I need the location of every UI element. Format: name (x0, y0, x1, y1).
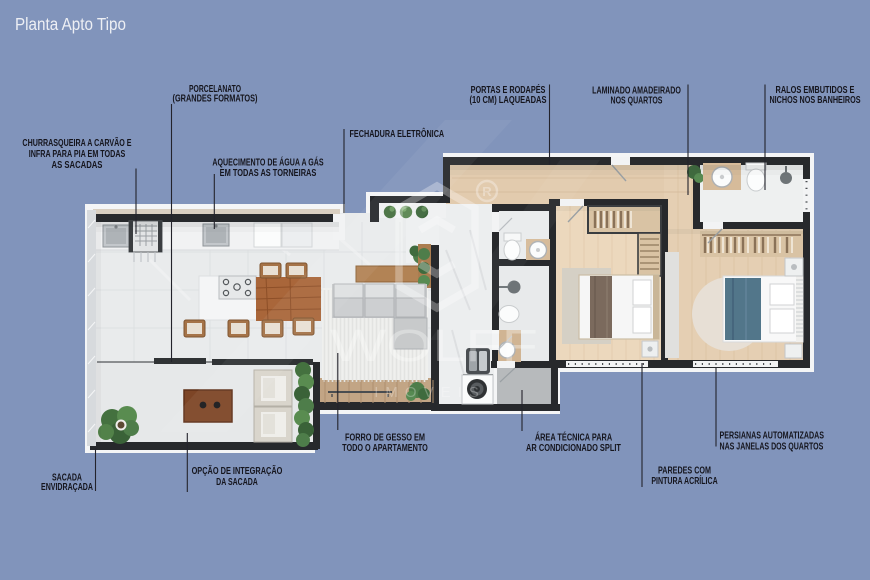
svg-text:FECHADURA ELETRÔNICA: FECHADURA ELETRÔNICA (350, 127, 445, 140)
svg-text:AS SACADAS: AS SACADAS (52, 159, 103, 170)
svg-text:NICHOS NOS BANHEIROS: NICHOS NOS BANHEIROS (769, 94, 860, 105)
svg-text:CHURRASQUEIRA A CARVÃO E: CHURRASQUEIRA A CARVÃO E (22, 137, 131, 148)
svg-text:INFRA PARA PIA EM TODAS: INFRA PARA PIA EM TODAS (29, 148, 126, 159)
svg-text:AR CONDICIONADO SPLIT: AR CONDICIONADO SPLIT (526, 442, 621, 453)
svg-text:IMÓVEIS: IMÓVEIS (374, 384, 486, 401)
svg-text:OPÇÃO DE INTEGRAÇÃO: OPÇÃO DE INTEGRAÇÃO (192, 465, 283, 476)
svg-text:NOS QUARTOS: NOS QUARTOS (611, 94, 663, 106)
svg-text:DA SACADA: DA SACADA (216, 476, 258, 488)
svg-text:PINTURA ACRÍLICA: PINTURA ACRÍLICA (651, 474, 717, 487)
svg-text:R: R (482, 184, 492, 199)
svg-text:PERSIANAS AUTOMATIZADAS: PERSIANAS AUTOMATIZADAS (720, 429, 825, 440)
svg-text:WOLFF: WOLFF (330, 321, 538, 371)
svg-text:EM TODAS AS TORNEIRAS: EM TODAS AS TORNEIRAS (220, 167, 317, 178)
svg-text:AQUECIMENTO DE ÁGUA A GÁS: AQUECIMENTO DE ÁGUA A GÁS (212, 155, 323, 168)
svg-text:(GRANDES FORMATOS): (GRANDES FORMATOS) (173, 92, 258, 103)
svg-text:TODO O APARTAMENTO: TODO O APARTAMENTO (342, 442, 428, 453)
svg-text:Planta Apto Tipo: Planta Apto Tipo (15, 15, 126, 34)
svg-text:ENVIDRAÇADA: ENVIDRAÇADA (41, 481, 93, 492)
svg-text:(10 CM) LAQUEADAS: (10 CM) LAQUEADAS (470, 94, 547, 105)
svg-text:NAS JANELAS DOS QUARTOS: NAS JANELAS DOS QUARTOS (720, 440, 824, 451)
